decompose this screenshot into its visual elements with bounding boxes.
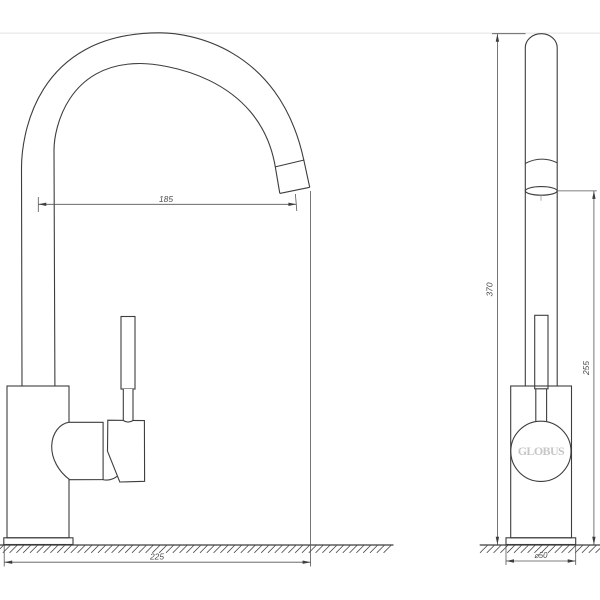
svg-text:185: 185: [159, 194, 173, 204]
svg-text:GLOBUS: GLOBUS: [518, 444, 565, 458]
svg-text:370: 370: [484, 282, 494, 296]
svg-text:⌀50: ⌀50: [534, 551, 548, 560]
svg-text:255: 255: [581, 361, 591, 376]
svg-text:225: 225: [149, 551, 164, 561]
